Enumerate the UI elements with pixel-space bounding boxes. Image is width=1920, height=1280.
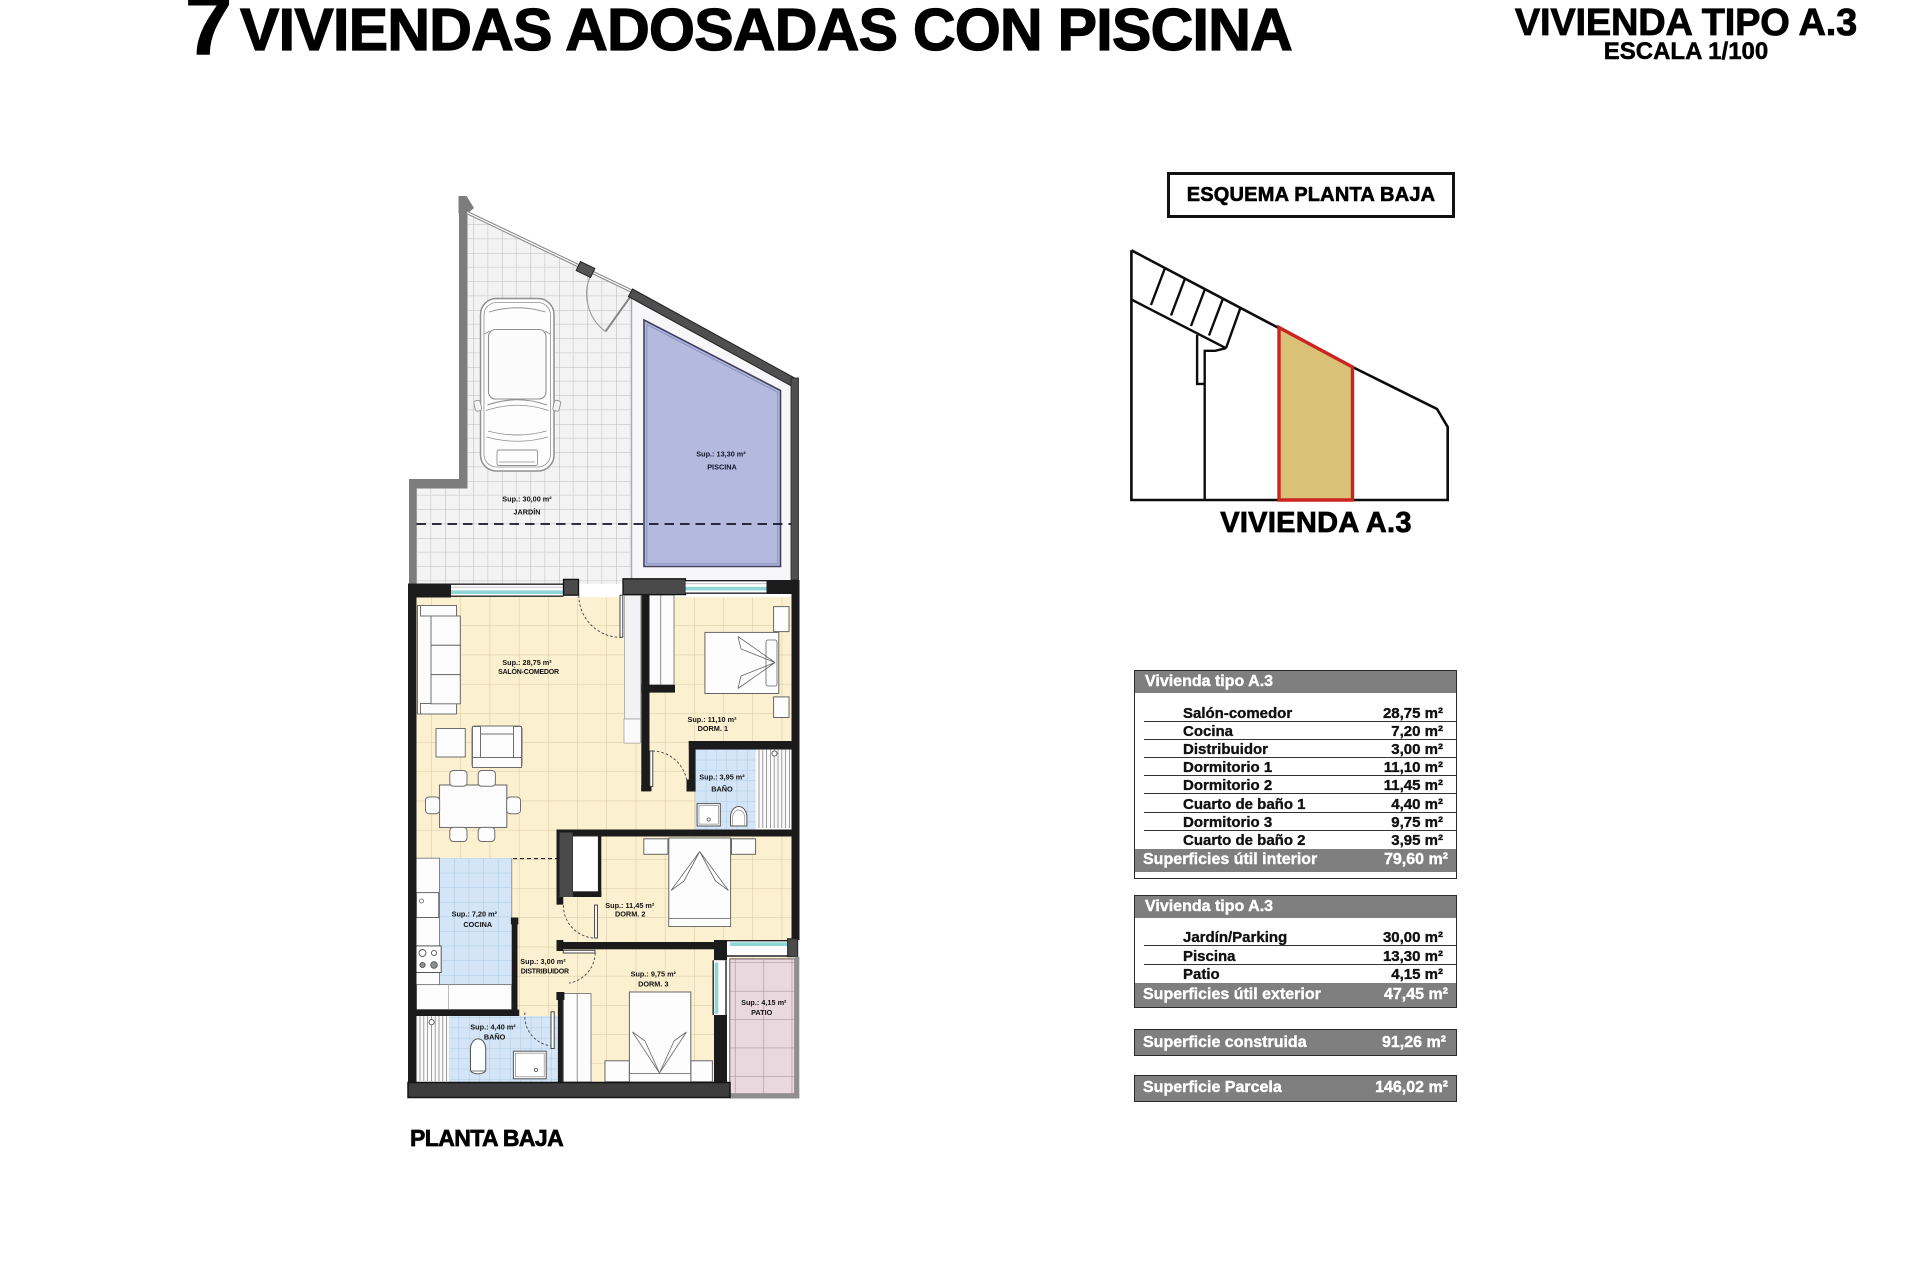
svg-text:JARDÍN: JARDÍN — [513, 508, 540, 517]
svg-text:Sup.: 7,20 m²: Sup.: 7,20 m² — [452, 910, 498, 919]
svg-text:Sup.: 30,00 m²: Sup.: 30,00 m² — [502, 495, 552, 504]
svg-text:Sup.: 3,95 m²: Sup.: 3,95 m² — [699, 773, 745, 782]
svg-text:Sup.: 9,75 m²: Sup.: 9,75 m² — [631, 970, 677, 979]
svg-text:PATIO: PATIO — [751, 1008, 773, 1017]
svg-text:BAÑO: BAÑO — [484, 1032, 506, 1041]
svg-text:SALÓN-COMEDOR: SALÓN-COMEDOR — [498, 667, 559, 676]
svg-text:DORM. 3: DORM. 3 — [638, 980, 668, 989]
svg-text:BAÑO: BAÑO — [711, 785, 733, 794]
svg-text:Sup.: 13,30 m²: Sup.: 13,30 m² — [696, 450, 746, 459]
svg-text:Sup.: 4,40 m²: Sup.: 4,40 m² — [470, 1023, 516, 1032]
svg-text:Sup.: 4,15 m²: Sup.: 4,15 m² — [741, 998, 787, 1007]
svg-text:DORM. 1: DORM. 1 — [698, 724, 728, 733]
svg-text:DISTRIBUIDOR: DISTRIBUIDOR — [521, 969, 569, 976]
svg-text:Sup.: 3,00 m²: Sup.: 3,00 m² — [520, 957, 566, 966]
svg-text:COCINA: COCINA — [463, 920, 493, 929]
svg-text:PISCINA: PISCINA — [707, 463, 737, 472]
svg-text:Sup.: 11,10 m²: Sup.: 11,10 m² — [687, 715, 737, 724]
svg-text:DORM. 2: DORM. 2 — [615, 910, 645, 919]
svg-text:Sup.: 28,75 m²: Sup.: 28,75 m² — [502, 658, 552, 667]
